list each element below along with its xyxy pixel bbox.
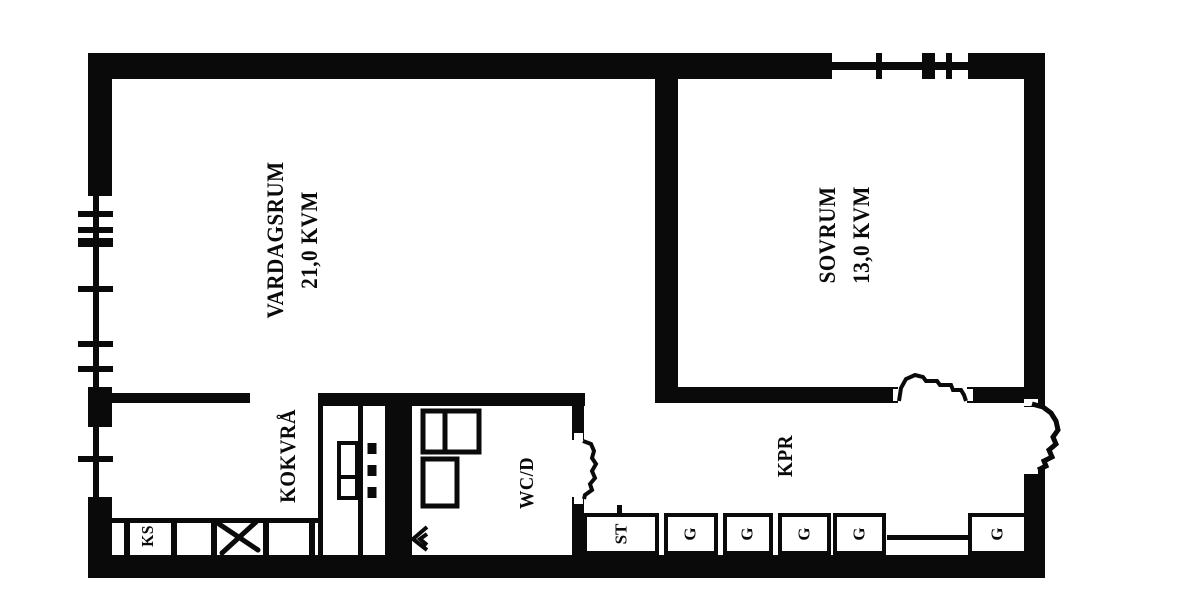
bathroom-name: WC/D [516,457,538,509]
hall-label: KPR [771,415,799,498]
door-hinge-icon [413,527,427,550]
door-swing-bedroom-icon [899,375,966,401]
sink-icon [339,443,357,498]
bathroom-label: WC/D [513,432,541,533]
living-room-name: VARDAGSRUM [259,161,293,318]
floor-plan: ST G G G G G VARDAGSRUM 21,0 KVM [0,0,1200,614]
door-swing-entrance-icon [1032,404,1058,470]
plan-symbols [0,0,1200,614]
bedroom-label: SOVRUM 13,0 KVM [808,143,882,327]
bedroom-name: SOVRUM [811,187,845,284]
door-swing-bath-icon [583,441,596,499]
washbasin-icon [423,411,479,452]
toilet-icon [423,459,457,506]
bedroom-area: 13,0 KVM [845,186,879,284]
fridge-label: KS [138,518,158,555]
kitchenette-name: KOKVRÅ [277,409,299,503]
hall-name: KPR [774,435,796,477]
living-room-label: VARDAGSRUM 21,0 KVM [256,148,330,332]
living-room-area: 21,0 KVM [293,191,327,289]
kitchenette-label: KOKVRÅ [273,392,303,521]
fridge-name: KS [138,525,158,547]
